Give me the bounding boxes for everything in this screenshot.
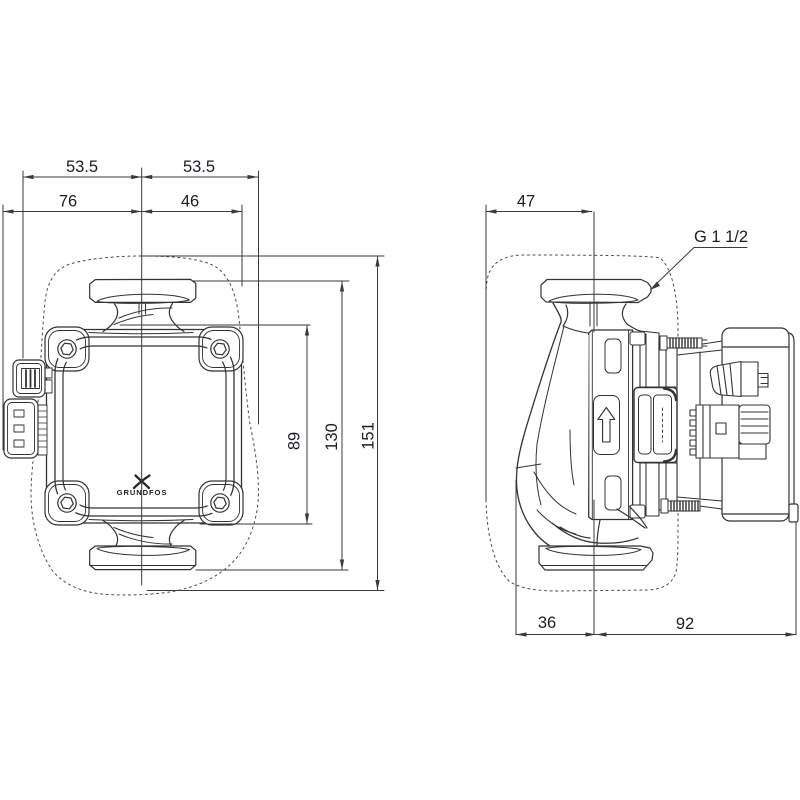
svg-text:130: 130 [323,423,341,451]
svg-text:53.5: 53.5 [66,158,98,176]
svg-text:47: 47 [517,193,535,211]
svg-text:151: 151 [360,422,378,450]
svg-text:53.5: 53.5 [183,158,215,176]
svg-text:G 1 1/2: G 1 1/2 [694,228,748,246]
svg-text:92: 92 [676,615,694,633]
svg-text:89: 89 [286,432,304,450]
svg-text:46: 46 [181,193,199,211]
svg-text:76: 76 [59,193,77,211]
svg-text:36: 36 [538,614,556,632]
